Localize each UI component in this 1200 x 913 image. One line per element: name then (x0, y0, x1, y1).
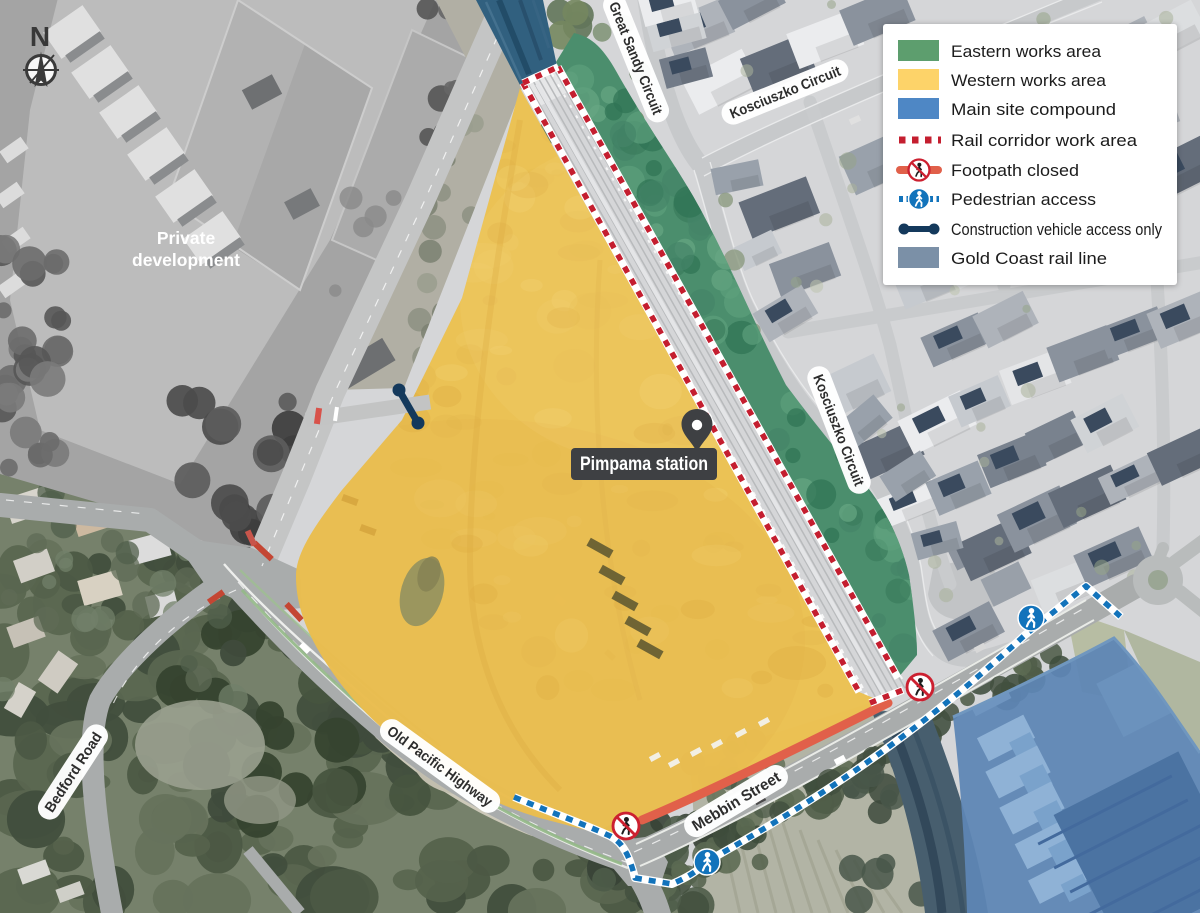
svg-text:Western works area: Western works area (951, 71, 1107, 90)
svg-text:Pimpama station: Pimpama station (580, 454, 708, 475)
svg-text:Pedestrian access: Pedestrian access (951, 190, 1096, 209)
svg-text:development: development (132, 250, 240, 270)
svg-text:Rail corridor work area: Rail corridor work area (951, 131, 1138, 150)
svg-text:Private: Private (157, 228, 216, 248)
svg-text:N: N (30, 21, 50, 52)
svg-text:Main site compound: Main site compound (951, 100, 1116, 119)
svg-text:Footpath closed: Footpath closed (951, 161, 1079, 180)
svg-text:Construction vehicle access on: Construction vehicle access only (951, 220, 1162, 239)
svg-text:Gold Coast rail line: Gold Coast rail line (951, 249, 1107, 268)
svg-text:Eastern works area: Eastern works area (951, 42, 1102, 61)
